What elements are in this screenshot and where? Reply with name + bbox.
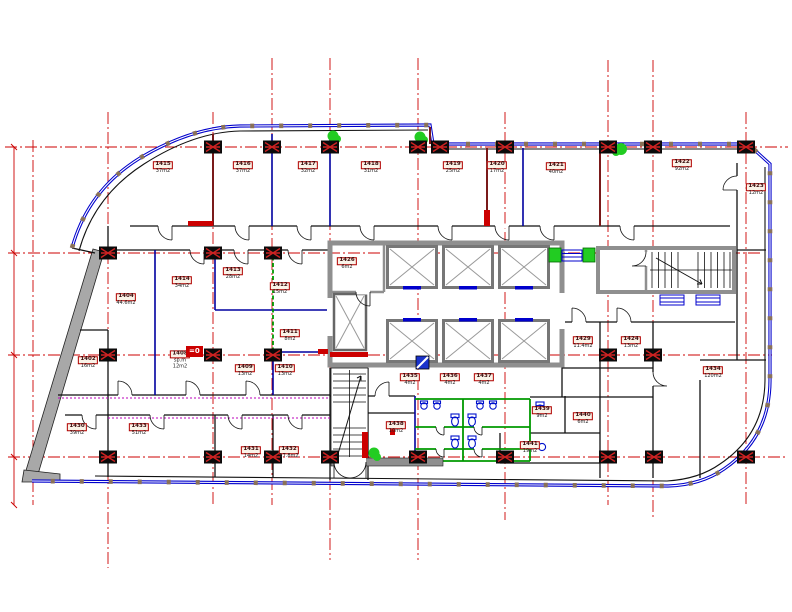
elevator-shaft: [444, 321, 493, 362]
elevator-shaft: [500, 321, 549, 362]
lobby-opening-right: [558, 293, 565, 329]
floor-plan-drawing: [0, 0, 792, 612]
elevator-shaft: [388, 321, 437, 362]
elevator-shaft: [388, 247, 437, 288]
staircase-2: [598, 248, 734, 305]
radiators: [660, 295, 720, 305]
level-marker: =0: [186, 346, 203, 357]
floor-plan-canvas: 1415 37m2 1416 37m2 1417 32m2 1418 31m2 …: [0, 0, 792, 612]
curtain-wall: [32, 125, 770, 486]
curtain-wall-mullions: [32, 125, 770, 486]
elevator-shaft: [500, 247, 549, 288]
grid-axes: [5, 58, 788, 568]
elevator-shaft: [444, 247, 493, 288]
corridor-planters: [549, 248, 595, 262]
dimension-line: [5, 144, 17, 508]
plants: [328, 131, 628, 462]
shaft-marker: [416, 356, 429, 369]
elevator-doors: [403, 286, 533, 322]
concrete-diagonal-wall: [22, 248, 104, 482]
door-gaps: [82, 176, 740, 451]
